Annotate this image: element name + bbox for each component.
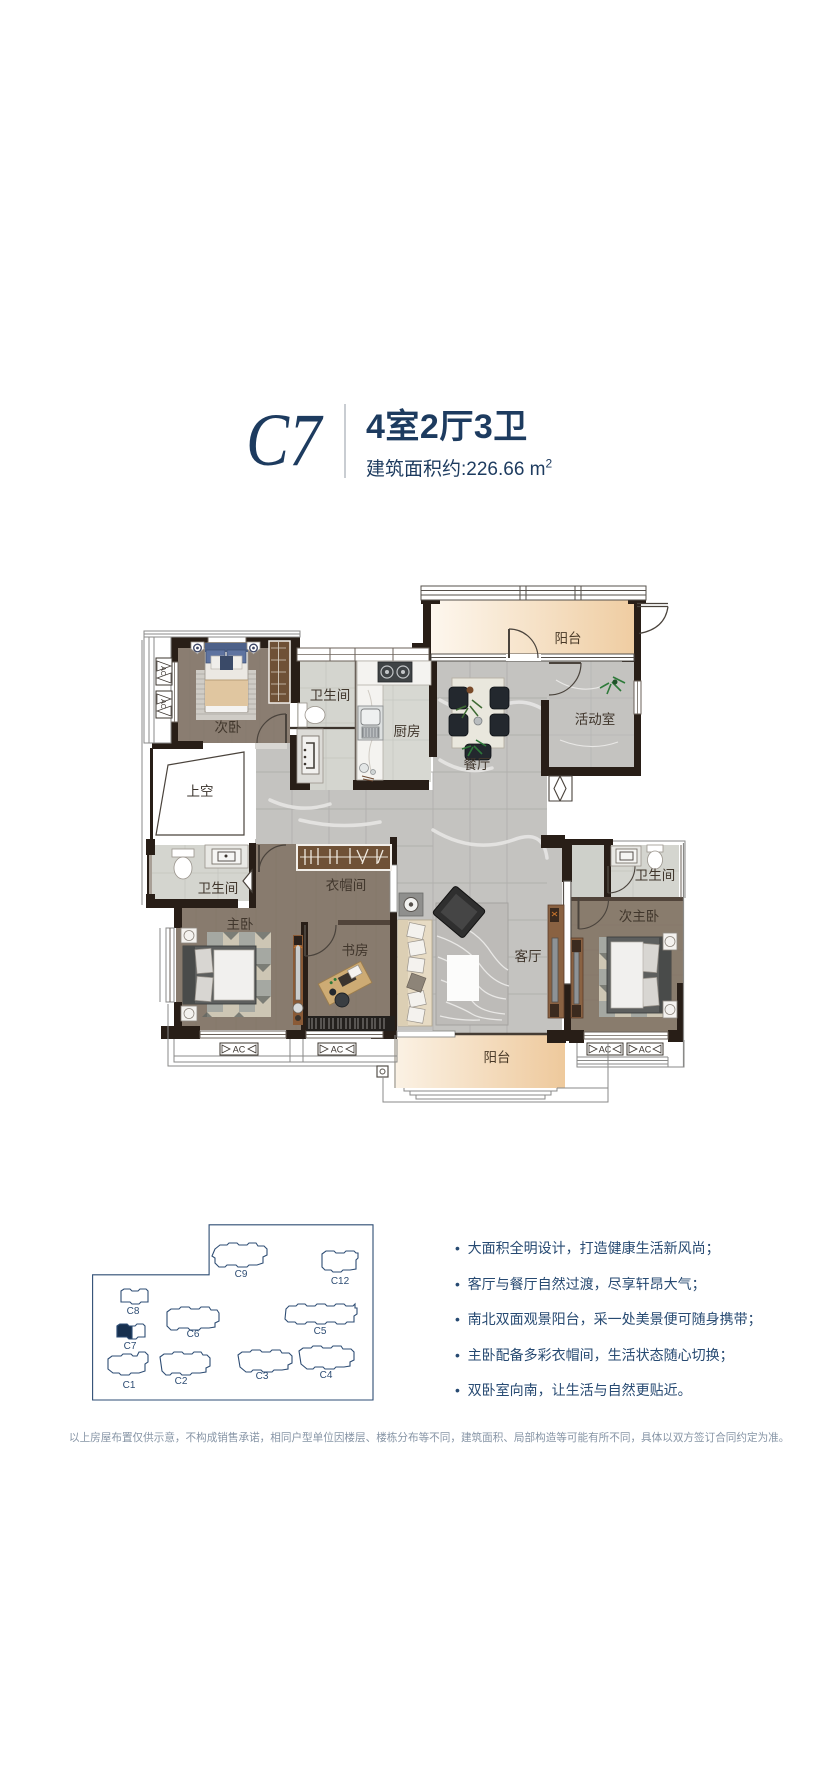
svg-text:C3: C3	[256, 1371, 269, 1382]
svg-text:厨房: 厨房	[394, 724, 421, 739]
svg-text:C12: C12	[331, 1276, 350, 1287]
svg-text:次主卧: 次主卧	[619, 909, 660, 924]
svg-text:书房: 书房	[342, 943, 369, 958]
svg-text:餐厅: 餐厅	[464, 757, 491, 772]
svg-text:阳台: 阳台	[484, 1050, 511, 1065]
svg-text:C8: C8	[127, 1306, 140, 1317]
svg-text:C4: C4	[320, 1370, 333, 1381]
svg-text:C1: C1	[123, 1380, 136, 1391]
svg-text:AC: AC	[159, 666, 166, 676]
svg-text:上空: 上空	[187, 784, 214, 799]
svg-text:C9: C9	[235, 1269, 248, 1280]
svg-text:衣帽间: 衣帽间	[326, 878, 367, 893]
svg-text:AC: AC	[159, 699, 166, 709]
svg-text:C6: C6	[187, 1329, 200, 1340]
svg-text:AC: AC	[233, 1045, 246, 1055]
svg-text:AC: AC	[639, 1045, 652, 1055]
svg-text:阳台: 阳台	[555, 631, 582, 646]
svg-text:活动室: 活动室	[575, 711, 616, 727]
svg-text:客厅: 客厅	[515, 948, 542, 964]
svg-text:C7: C7	[124, 1341, 137, 1352]
svg-text:卫生间: 卫生间	[198, 881, 239, 896]
svg-text:C5: C5	[314, 1326, 327, 1337]
svg-text:次卧: 次卧	[215, 720, 242, 735]
svg-text:卫生间: 卫生间	[635, 868, 676, 883]
svg-text:卫生间: 卫生间	[310, 688, 351, 703]
svg-text:AC: AC	[599, 1045, 612, 1055]
svg-text:C2: C2	[175, 1376, 188, 1387]
svg-text:AC: AC	[331, 1045, 344, 1055]
svg-text:主卧: 主卧	[227, 917, 254, 932]
